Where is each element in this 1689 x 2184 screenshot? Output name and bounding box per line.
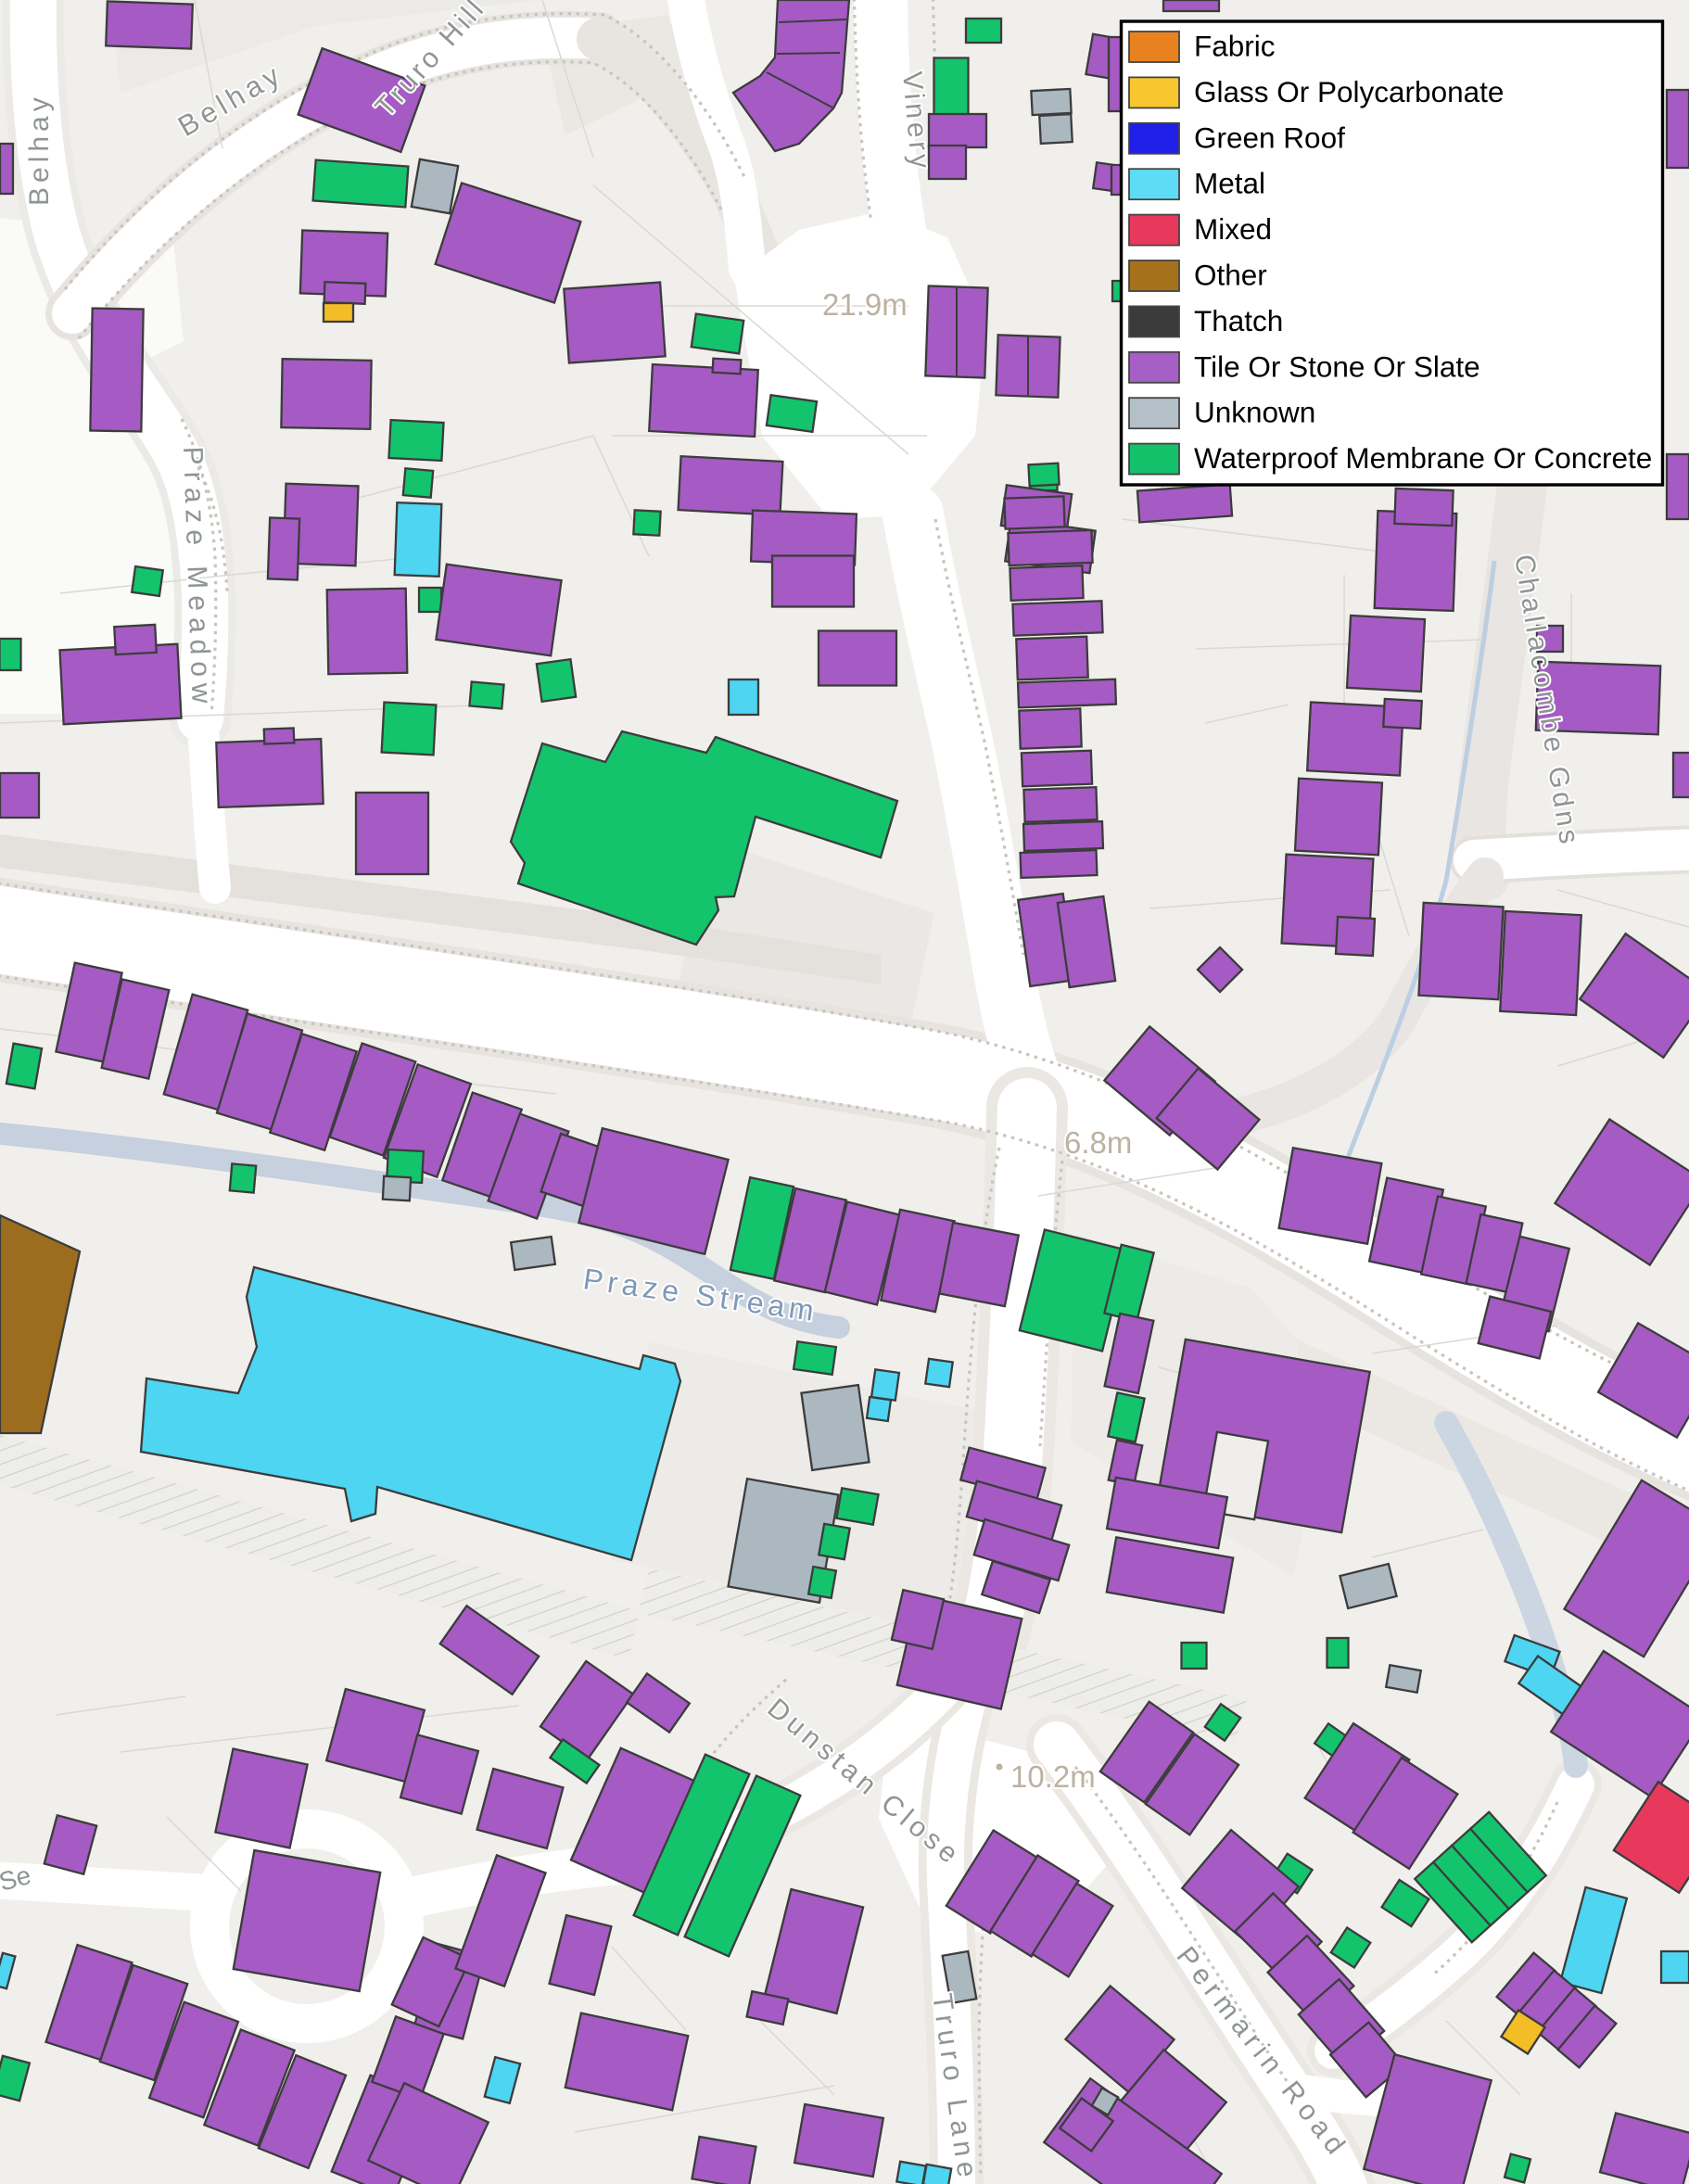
svg-text:Glass Or Polycarbonate: Glass Or Polycarbonate — [1194, 75, 1504, 108]
svg-text:Mixed: Mixed — [1194, 212, 1272, 246]
svg-text:Tile Or Stone Or Slate: Tile Or Stone Or Slate — [1194, 349, 1480, 383]
svg-text:21.9m: 21.9m — [822, 287, 908, 322]
svg-text:10.2m: 10.2m — [1010, 1759, 1096, 1794]
svg-text:Metal: Metal — [1194, 167, 1265, 200]
svg-text:Green Roof: Green Roof — [1194, 121, 1345, 154]
svg-text:Waterproof Membrane Or Concret: Waterproof Membrane Or Concrete — [1194, 441, 1652, 475]
svg-text:6.8m: 6.8m — [1064, 1125, 1132, 1160]
svg-text:Other: Other — [1194, 259, 1267, 292]
svg-text:Thatch: Thatch — [1194, 304, 1283, 337]
svg-text:Fabric: Fabric — [1194, 30, 1276, 63]
svg-text:Belhay: Belhay — [24, 93, 55, 206]
svg-text:Unknown: Unknown — [1194, 396, 1315, 429]
